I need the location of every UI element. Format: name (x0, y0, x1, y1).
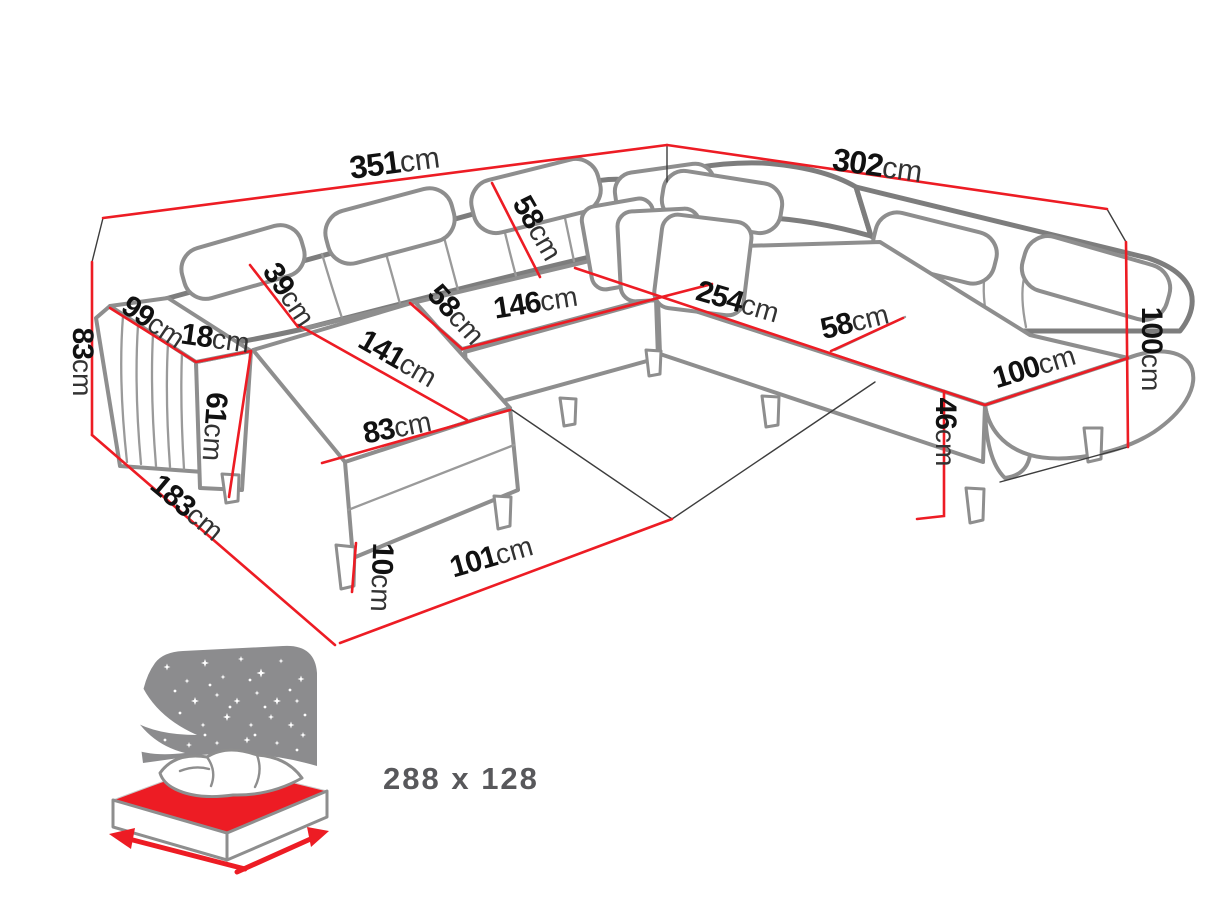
sofa-leg (560, 398, 576, 426)
sleeping-function-icon (109, 646, 329, 872)
wireframe-edge (92, 218, 103, 262)
sofa-leg (966, 488, 984, 523)
diagram-canvas: 351cm 302cm 58cm 39cm 99cm 18cm 83cm 61c… (0, 0, 1214, 910)
dimension-label-armrest-height: 61cm (196, 391, 234, 462)
sofa-dimension-diagram: 351cm 302cm 58cm 39cm 99cm 18cm 83cm 61c… (0, 0, 1214, 910)
dimension-label-seat-height: 46cm (929, 398, 962, 467)
dimension-label-height-left: 83cm (66, 328, 99, 397)
floor-edge (512, 410, 672, 519)
sofa-leg (646, 350, 661, 376)
dimension-label-front-passage-width: 101cm (446, 529, 536, 584)
bed-size-label: 288 x 128 (383, 761, 539, 796)
dimension-label-total-width-left: 351cm (347, 138, 441, 186)
dimension-label-total-height-right: 100cm (1135, 307, 1168, 392)
dimension-label-leg-height: 10cm (364, 542, 399, 612)
sofa-leg (494, 496, 511, 529)
wireframe-edge (1107, 209, 1126, 242)
sofa-leg (762, 396, 779, 427)
